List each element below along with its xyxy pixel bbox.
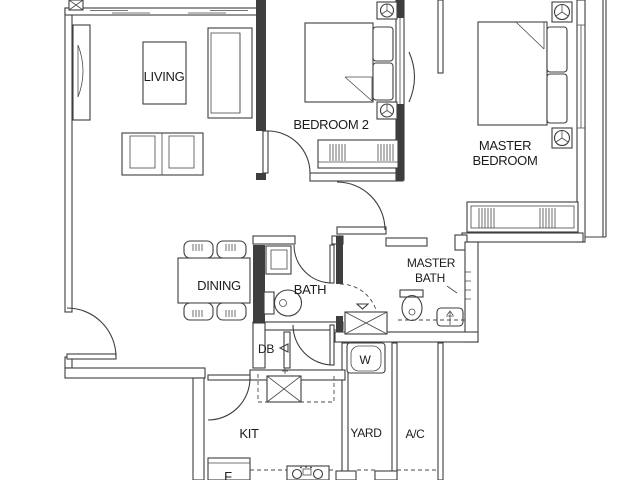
kitchen-door-leaf xyxy=(208,375,250,380)
bottom-left-wall xyxy=(65,368,205,378)
tv-console xyxy=(73,25,90,120)
room-label-master-bedroom-2: BEDROOM xyxy=(472,153,537,168)
stove-dot xyxy=(310,467,312,469)
entrance-door xyxy=(67,308,116,359)
kitchen-west-wall xyxy=(193,378,204,480)
sofa xyxy=(208,28,252,118)
room-label-dining: DINING xyxy=(197,278,241,293)
master-door-swing xyxy=(337,182,385,230)
bath-toilet-drain xyxy=(280,300,287,307)
dining-chair xyxy=(217,241,246,258)
master-door-leaf xyxy=(337,227,386,234)
bedroom2-door-leaf xyxy=(263,131,268,173)
bath-door-leaf xyxy=(330,245,334,283)
entrance-door-leaf xyxy=(67,354,116,359)
room-label-kitchen: KIT xyxy=(239,426,259,441)
bedroom2-south-wall xyxy=(310,173,403,181)
dining-area: DINING xyxy=(178,241,250,320)
master-pillow-2 xyxy=(547,74,567,123)
corridor-south-wall xyxy=(386,238,427,246)
mbath-toilet-drain xyxy=(409,309,415,315)
stove-dot xyxy=(305,466,307,468)
bath: BATH xyxy=(253,236,343,330)
yard-ac-divider xyxy=(392,343,397,480)
master-bath: MASTER BATH xyxy=(335,236,478,342)
kitchen: F KIT xyxy=(208,368,436,480)
master-wardrobe xyxy=(467,202,578,232)
bedroom2-bay-window-curve xyxy=(409,52,415,102)
master-bedroom: MASTER BEDROOM xyxy=(438,0,585,242)
right-ledge-line xyxy=(585,0,606,237)
bedroom2-pillow-1 xyxy=(373,27,393,61)
bedroom2-pillow-2 xyxy=(373,63,393,100)
floor-plan-drawing: LIVING BEDROOM 2 xyxy=(0,0,640,480)
master-west-wall-stub xyxy=(438,0,443,73)
living-top-window-wall xyxy=(65,8,258,15)
kitchen-fixture-box xyxy=(336,471,356,480)
dining-chair xyxy=(184,241,213,258)
left-wall xyxy=(65,8,72,312)
room-label-yard: YARD xyxy=(350,426,382,440)
mbath-label-leader xyxy=(447,286,457,293)
room-label-master-bedroom-1: MASTER xyxy=(479,138,531,153)
kitchen-door-swing xyxy=(208,378,250,420)
passage-door-leaf xyxy=(330,325,334,365)
entrance-door-swing xyxy=(67,308,116,357)
room-label-bedroom2: BEDROOM 2 xyxy=(293,117,368,132)
mbath-threshold-marker xyxy=(357,304,368,309)
master-south-wall xyxy=(462,233,583,242)
mbath-east-wall xyxy=(465,242,478,342)
master-pillow-1 xyxy=(547,27,567,72)
label-washer: W xyxy=(359,353,371,367)
bath-west-wall xyxy=(253,245,265,323)
mbath-west-wall-top xyxy=(336,236,343,284)
bedroom-2: BEDROOM 2 xyxy=(256,0,415,181)
living-room: LIVING xyxy=(73,25,252,175)
bath-door-swing xyxy=(294,245,332,283)
mbath-west-wall-bottom xyxy=(336,316,343,332)
bedroom2-bed xyxy=(305,23,373,102)
room-label-master-bath-1: MASTER xyxy=(407,256,456,270)
stove-dot xyxy=(300,467,302,469)
passage-door-swing xyxy=(293,325,333,365)
corridor xyxy=(337,182,467,250)
label-fridge: F xyxy=(224,469,232,480)
yard-ac: W YARD A/C xyxy=(342,343,443,480)
room-label-living: LIVING xyxy=(144,69,185,84)
kitchen-fixture-box xyxy=(375,471,397,480)
ac-east-wall xyxy=(438,343,443,480)
bath-north-wall xyxy=(253,236,295,244)
bedroom2-door-stub xyxy=(256,173,266,180)
mbath-toilet-bowl xyxy=(402,296,422,321)
room-label-ac: A/C xyxy=(405,427,425,441)
dining-chair xyxy=(184,303,213,320)
room-label-bath: BATH xyxy=(294,282,327,297)
dining-chair xyxy=(217,303,246,320)
bedroom2-door-swing xyxy=(268,131,310,173)
bath-toilet-cistern xyxy=(264,292,274,314)
bedroom2-west-wall xyxy=(256,0,266,131)
loveseat xyxy=(122,133,203,175)
master-bed xyxy=(478,22,547,125)
room-label-master-bath-2: BATH xyxy=(415,271,445,285)
label-db: DB xyxy=(258,342,274,356)
floor-plan: LIVING BEDROOM 2 xyxy=(0,0,640,480)
